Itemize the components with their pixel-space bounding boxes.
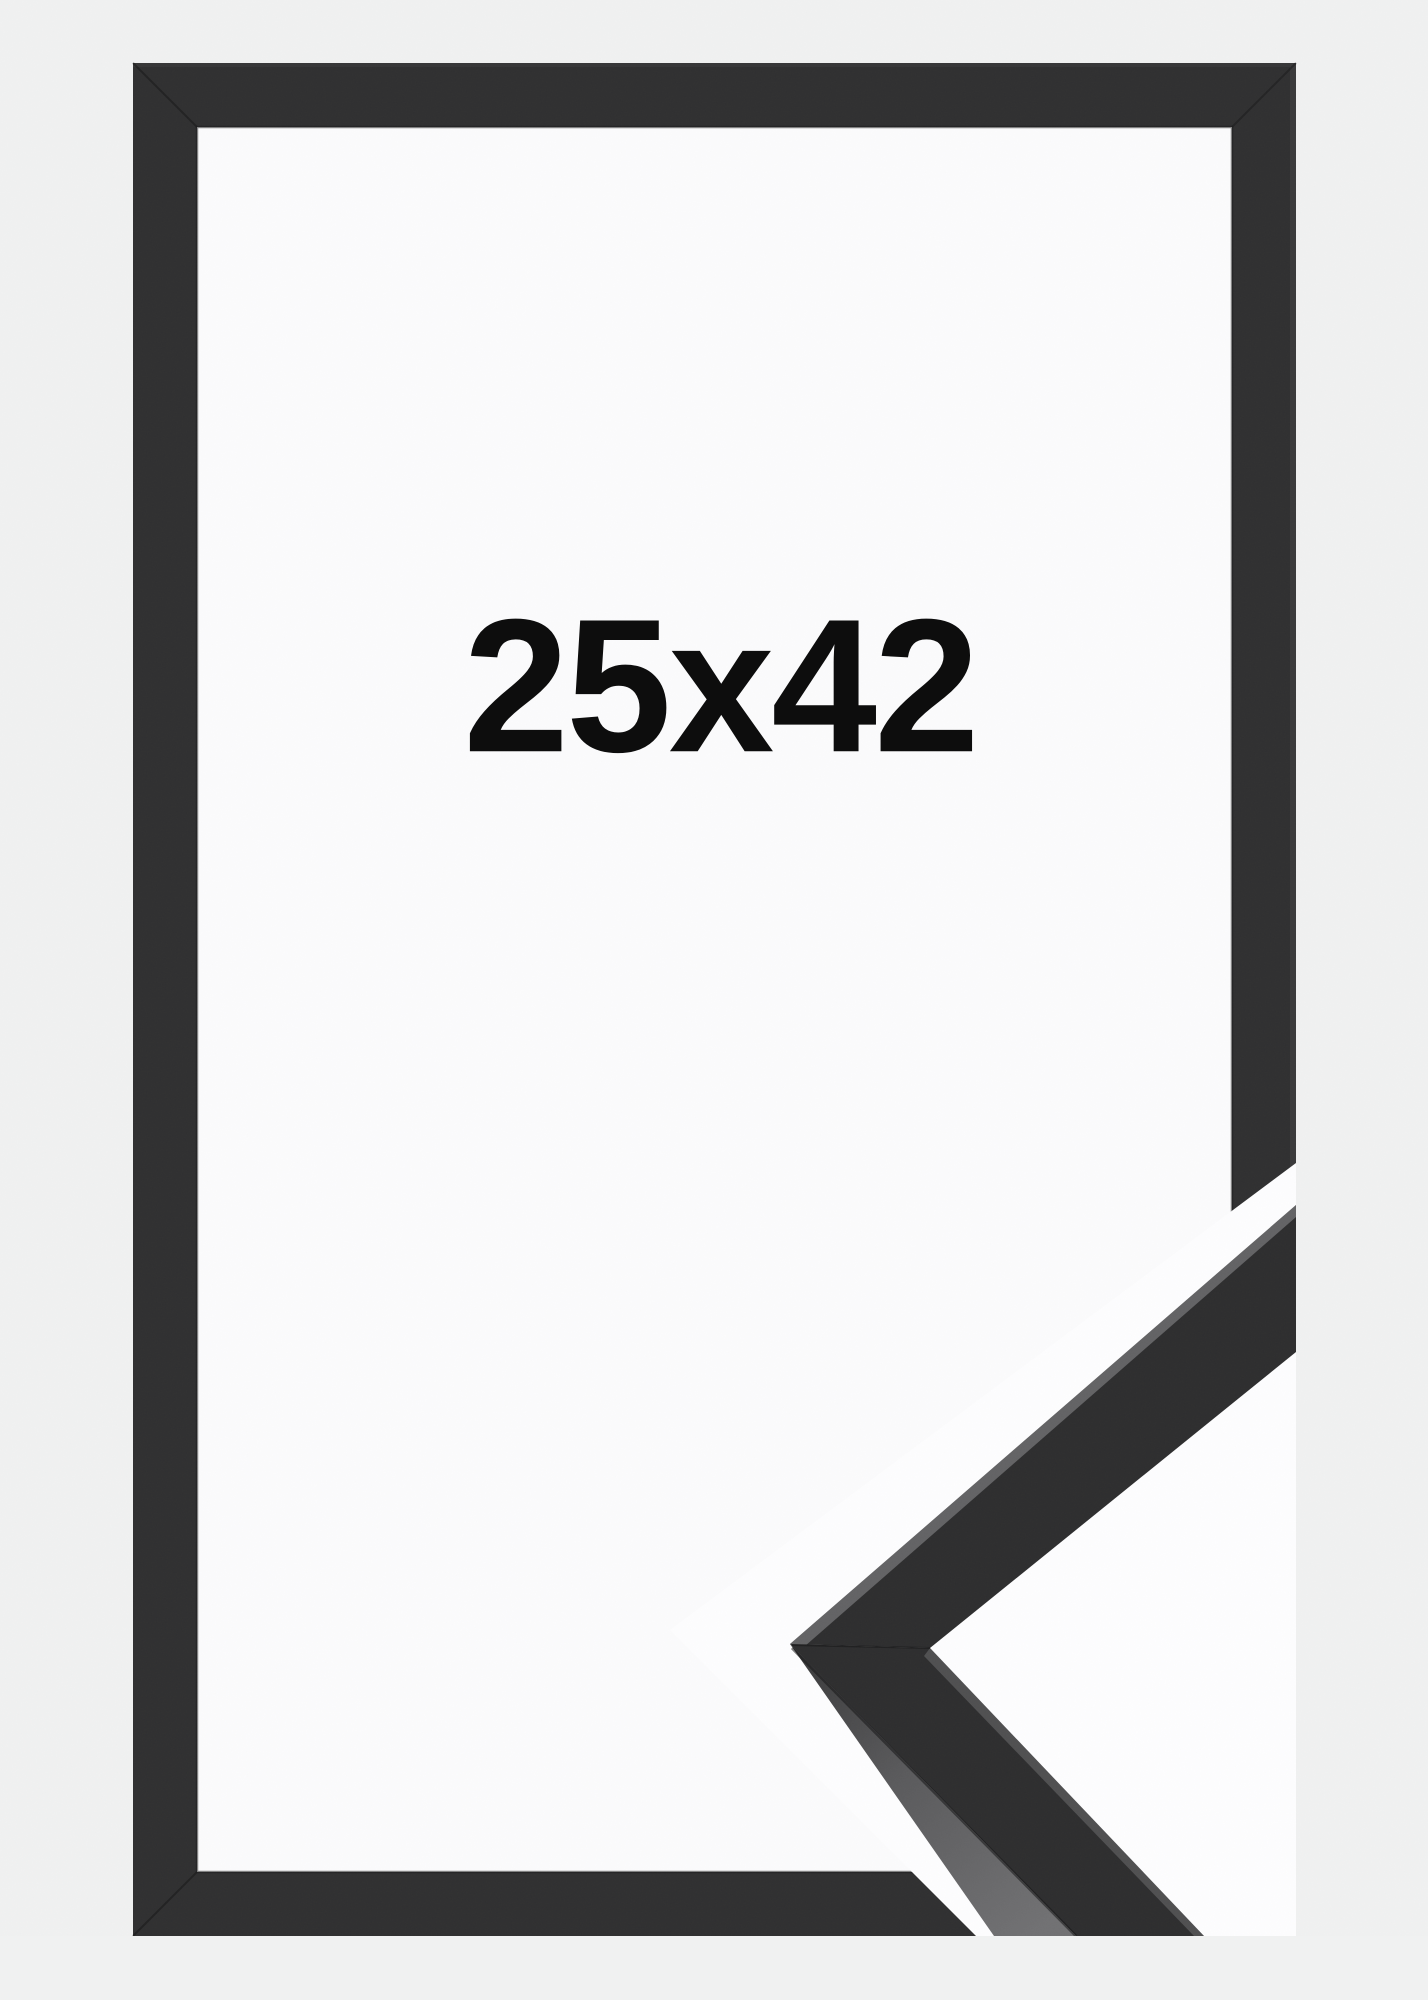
photo-grain-overlay [0,0,1428,1936]
product-image[interactable]: 25x42 [0,0,1428,2000]
photo-bottom-margin [0,1936,1428,2000]
size-label: 25x42 [463,577,976,795]
frame-photo-canvas [0,0,1428,2000]
